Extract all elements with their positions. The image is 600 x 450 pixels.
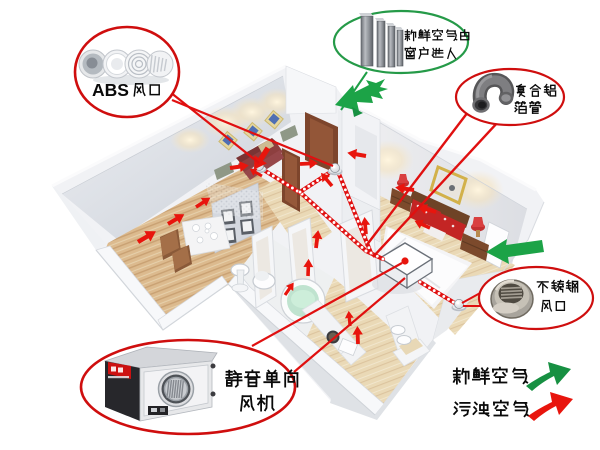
svg-text:ABS: ABS [92, 80, 129, 100]
